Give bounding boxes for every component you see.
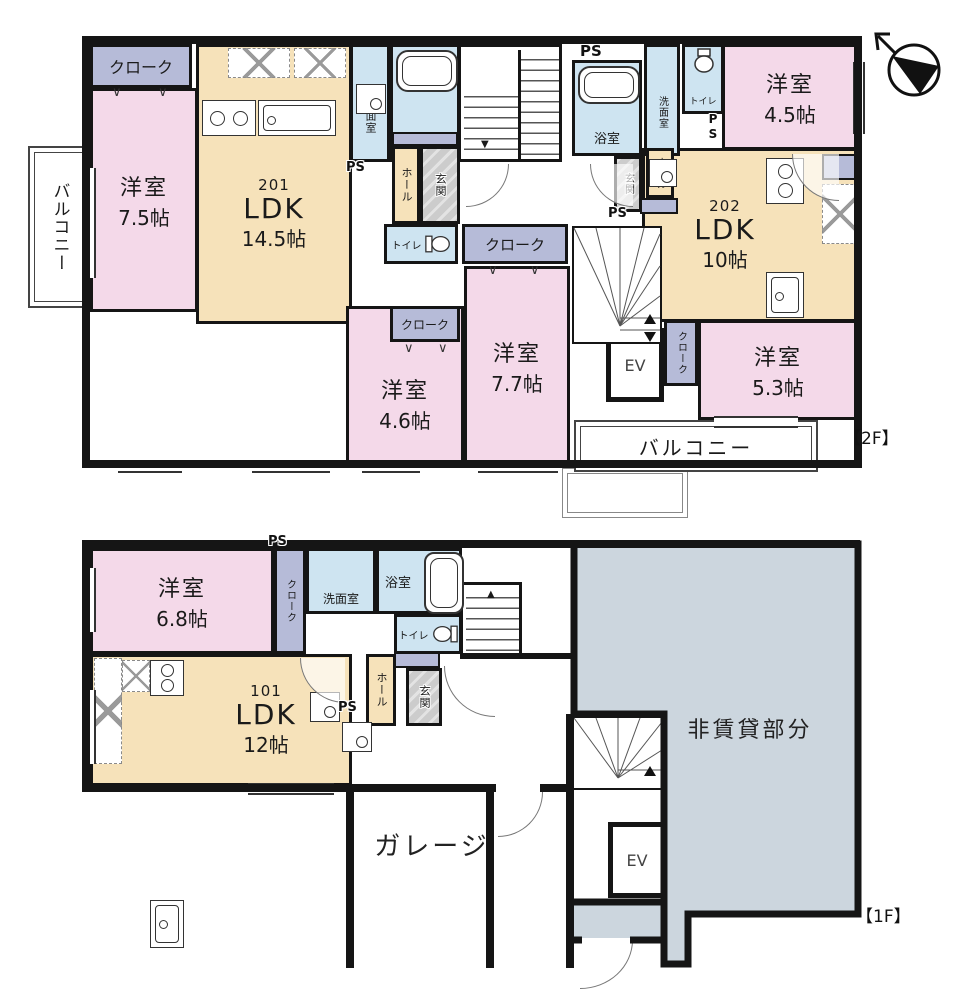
window xyxy=(714,416,798,428)
closet-label: クローク xyxy=(401,316,449,333)
shoe-closet xyxy=(640,198,678,214)
room-type: LDK xyxy=(243,194,305,223)
window xyxy=(362,461,420,473)
elevator-label: EV xyxy=(626,851,647,870)
stove-icon xyxy=(150,660,184,696)
stair-steps xyxy=(464,87,518,159)
bath-label: 浴室 xyxy=(385,572,411,591)
shoe-closet xyxy=(394,652,440,668)
closet-label: クローク xyxy=(109,54,173,78)
washroom-2f-202: 洗面室 xyxy=(644,44,680,156)
stair-arrow-icon: ▼ xyxy=(481,139,489,150)
window xyxy=(118,461,182,473)
room-name: 洋室 xyxy=(493,336,541,368)
elevator-2f: EV xyxy=(606,328,664,402)
toilet-1f: トイレ xyxy=(394,614,462,654)
closet-door-mark: ∨ xyxy=(404,342,414,355)
toilet-2f-201: トイレ xyxy=(384,224,458,264)
room-area: 4.5帖 xyxy=(764,99,816,128)
shoe-closet xyxy=(392,132,458,146)
non-rental-label: 非賃貸部分 xyxy=(660,712,840,744)
hall-1f: ホール xyxy=(366,654,396,726)
stairs-1f-winding xyxy=(572,716,664,790)
room-area: 5.3帖 xyxy=(752,372,804,401)
exterior-door-arc xyxy=(580,940,633,989)
room-2f-western-7-5: 洋室 7.5帖 xyxy=(90,88,198,312)
closet-dashed-icon xyxy=(94,658,122,764)
window xyxy=(84,568,96,632)
bathtub-icon xyxy=(424,552,464,614)
hall-label: ホール xyxy=(398,167,414,203)
room-type: LDK xyxy=(694,215,756,244)
balcony-left-label: バルコニー xyxy=(48,182,73,272)
hall-label: ホール xyxy=(373,672,389,708)
closet-door-mark: ∨ xyxy=(112,86,122,99)
entrance-label: 玄関 xyxy=(432,173,448,197)
closet-2f-center: クローク xyxy=(462,224,568,264)
room-area: 14.5帖 xyxy=(242,223,307,252)
toilet-label: トイレ xyxy=(392,237,422,252)
hall-2f-201: ホール xyxy=(392,146,420,224)
washing-machine-icon xyxy=(649,159,677,187)
toilet-icon xyxy=(688,48,718,74)
floor-plan: バルコニー クローク 洋室 7.5帖 201 LDK 14.5帖 ∨ ∨ 洗面室… xyxy=(0,0,968,1000)
room-area: 4.6帖 xyxy=(379,405,431,434)
window xyxy=(248,783,334,795)
closet-door-mark: ∨ xyxy=(530,264,540,277)
stairs-2f-upper: ▼ xyxy=(458,44,562,162)
stair-steps xyxy=(518,50,559,159)
closet-label: クローク xyxy=(674,331,689,375)
closet-dashed-icon xyxy=(228,48,290,78)
room-name: 洋室 xyxy=(766,67,814,99)
room-area: 7.5帖 xyxy=(118,202,170,231)
entrance-label: 玄関 xyxy=(416,685,432,709)
closet-door-mark: ∨ xyxy=(158,86,168,99)
door-arc xyxy=(466,164,509,207)
washroom-1f: 洗面室 xyxy=(306,548,376,614)
non-rental-vestibule xyxy=(574,904,664,938)
closet-2f-topleft: クローク xyxy=(90,44,192,88)
closet-2f-46: クローク xyxy=(390,306,460,342)
porch-outline xyxy=(562,468,688,518)
room-type: LDK xyxy=(235,700,297,729)
window xyxy=(252,461,330,473)
closet-dashed-icon xyxy=(122,660,150,692)
washroom-label: 洗面室 xyxy=(655,96,670,129)
closet-door-mark: ∨ xyxy=(488,264,498,277)
closet-2f-202: クローク xyxy=(664,320,698,386)
entrance-1f: 玄関 xyxy=(406,668,442,726)
balcony-label: バルコニー xyxy=(639,432,754,461)
window xyxy=(478,461,558,473)
entrance-door-arc xyxy=(444,666,495,717)
garage-label: ガレージ xyxy=(352,826,512,863)
room-area: 12帖 xyxy=(243,729,288,758)
room-1f-western-6-8: 洋室 6.8帖 xyxy=(90,548,274,654)
ps-label-1f: PS xyxy=(268,534,287,549)
entrance-2f-201: 玄関 xyxy=(420,146,460,224)
closet-label: クローク xyxy=(283,579,298,623)
bath-label: 浴室 xyxy=(594,128,620,147)
stair-arrow-icon: ▲ xyxy=(487,589,495,600)
washroom-label: 洗面室 xyxy=(323,590,359,607)
stove-icon xyxy=(202,100,256,136)
vanity-icon xyxy=(342,722,372,752)
ps-label-top: PS xyxy=(580,42,602,60)
elevator-label: EV xyxy=(624,356,645,375)
room-area: 6.8帖 xyxy=(156,603,208,632)
room-2f-western-4-5: 洋室 4.5帖 xyxy=(722,44,858,150)
closet-1f: クローク xyxy=(274,548,306,654)
closet-dashed-icon xyxy=(294,48,346,78)
window xyxy=(84,690,96,764)
kitchen-sink-icon xyxy=(766,272,804,318)
balcony-left-2f: バルコニー xyxy=(28,146,92,308)
closet-door-mark: ∨ xyxy=(438,342,448,355)
door-arc xyxy=(590,164,633,207)
kitchen-sink-icon xyxy=(150,900,184,948)
stairs-1f: ▲ xyxy=(460,582,522,658)
toilet-label: トイレ xyxy=(399,627,429,642)
toilet-icon xyxy=(425,233,451,255)
closet-label: クローク xyxy=(485,234,545,255)
floor-tag-1f: 【1F】 xyxy=(856,902,911,927)
bathtub-icon xyxy=(396,50,458,92)
ps-label-side: PS xyxy=(706,112,720,142)
room-2f-ldk-201: 201 LDK 14.5帖 xyxy=(196,44,352,324)
toilet-icon xyxy=(432,623,458,645)
room-name: 洋室 xyxy=(158,571,206,603)
toilet-label: トイレ xyxy=(689,94,716,107)
room-area: 7.7帖 xyxy=(491,368,543,397)
room-name: 洋室 xyxy=(381,373,429,405)
ps-label-hall: PS xyxy=(338,700,357,715)
room-2f-western-5-3: 洋室 5.3帖 xyxy=(698,320,858,420)
ps-label-201: PS xyxy=(346,160,365,175)
ps-label-bottom: PS xyxy=(608,206,627,221)
room-name: 洋室 xyxy=(754,340,802,372)
room-area: 10帖 xyxy=(702,244,747,273)
room-2f-western-7-7: 洋室 7.7帖 xyxy=(464,266,570,466)
elevator-1f: EV xyxy=(608,822,666,898)
bathtub-icon xyxy=(578,66,640,104)
window xyxy=(84,168,96,278)
floor-tag-2f: 【2F】 xyxy=(844,424,899,449)
room-name: 洋室 xyxy=(120,170,168,202)
compass-icon xyxy=(862,24,952,104)
kitchen-sink-icon xyxy=(258,100,336,136)
washing-machine-icon xyxy=(356,84,386,114)
